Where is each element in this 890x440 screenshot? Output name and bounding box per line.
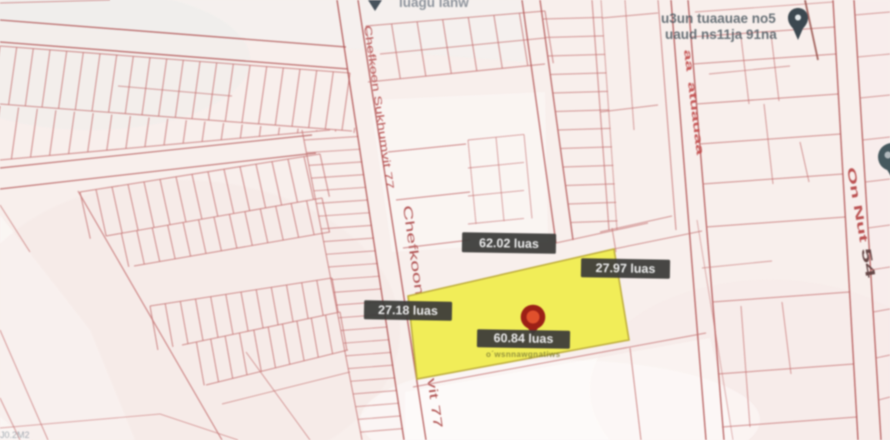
svg-text:uaud ns11ja 91na: uaud ns11ja 91na — [665, 27, 777, 42]
svg-text:o´wsnnawgnatiws: o´wsnnawgnatiws — [486, 350, 561, 359]
svg-text:27.18 luas: 27.18 luas — [378, 303, 438, 318]
svg-text:luagu lanw: luagu lanw — [399, 0, 469, 10]
svg-text:J0.2M2: J0.2M2 — [0, 430, 30, 440]
svg-text:60.84 luas: 60.84 luas — [494, 331, 554, 346]
svg-text:u3un tuaauae no5: u3un tuaauae no5 — [661, 11, 776, 26]
svg-text:27.97 luas: 27.97 luas — [595, 261, 655, 276]
svg-text:62.02 luas: 62.02 luas — [479, 236, 539, 251]
